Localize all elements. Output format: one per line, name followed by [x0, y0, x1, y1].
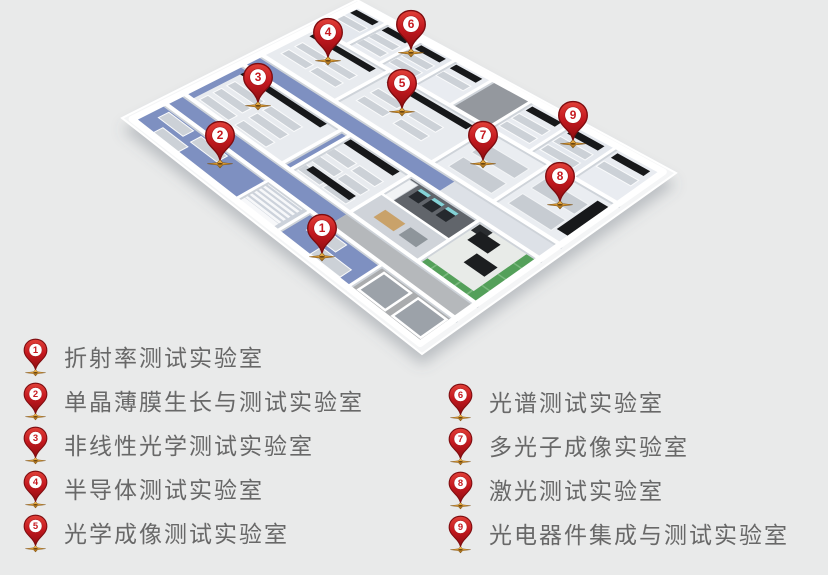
location-pin-icon: 8: [447, 471, 474, 510]
location-pin-icon: 1: [22, 338, 49, 377]
legend-label: 多光子成像实验室: [489, 436, 689, 459]
location-pin-icon: 2: [22, 382, 49, 421]
location-pin-icon: 4: [22, 470, 49, 509]
pin-number: 3: [33, 433, 38, 444]
pin-number: 8: [458, 478, 463, 489]
legend-column-left: 1折射率测试实验室2单晶薄膜生长与测试实验室3非线性光学测试实验室4半导体测试实…: [22, 336, 364, 556]
pin-number: 4: [33, 477, 39, 488]
location-pin-icon: 9: [447, 515, 474, 554]
location-pin-icon: 6: [447, 383, 474, 422]
legend-item-7: 7多光子成像实验室: [447, 425, 789, 469]
legend-item-9: 9光电器件集成与测试实验室: [447, 513, 789, 557]
location-pin-icon: 5: [22, 514, 49, 553]
location-pin-icon: 4: [22, 470, 49, 509]
location-pin-icon: 1: [22, 338, 49, 377]
legend-item-8: 8激光测试实验室: [447, 469, 789, 513]
pin-number: 6: [458, 390, 463, 401]
legend-label: 非线性光学测试实验室: [64, 435, 314, 458]
location-pin-icon: 3: [22, 426, 49, 465]
pin-number: 7: [458, 434, 463, 445]
legend-label: 光谱测试实验室: [489, 392, 664, 415]
pin-number: 1: [33, 345, 38, 356]
legend-item-4: 4半导体测试实验室: [22, 468, 364, 512]
pin-number: 2: [33, 389, 38, 400]
location-pin-icon: 7: [447, 427, 474, 466]
location-pin-icon: 8: [447, 471, 474, 510]
legend-label: 半导体测试实验室: [64, 479, 264, 502]
legend-label: 光学成像测试实验室: [64, 523, 289, 546]
legend-label: 单晶薄膜生长与测试实验室: [64, 391, 364, 414]
legend-item-6: 6光谱测试实验室: [447, 381, 789, 425]
legend-label: 激光测试实验室: [489, 480, 664, 503]
location-pin-icon: 9: [447, 515, 474, 554]
location-pin-icon: 6: [447, 383, 474, 422]
legend-item-5: 5光学成像测试实验室: [22, 512, 364, 556]
location-pin-icon: 2: [22, 382, 49, 421]
legend-column-right: 6光谱测试实验室7多光子成像实验室8激光测试实验室9光电器件集成与测试实验室: [447, 381, 789, 557]
location-pin-icon: 5: [22, 514, 49, 553]
legend-label: 折射率测试实验室: [64, 347, 264, 370]
location-pin-icon: 3: [22, 426, 49, 465]
pin-number: 5: [33, 521, 38, 532]
legend-label: 光电器件集成与测试实验室: [489, 524, 789, 547]
legend-item-3: 3非线性光学测试实验室: [22, 424, 364, 468]
legend-item-1: 1折射率测试实验室: [22, 336, 364, 380]
legend-item-2: 2单晶薄膜生长与测试实验室: [22, 380, 364, 424]
lab-floorplan-infographic: 123456789 1折射率测试实验室2单晶薄膜生长与测试实验室3非线性光学测试…: [0, 0, 828, 575]
pin-number: 9: [458, 522, 463, 533]
location-pin-icon: 7: [447, 427, 474, 466]
